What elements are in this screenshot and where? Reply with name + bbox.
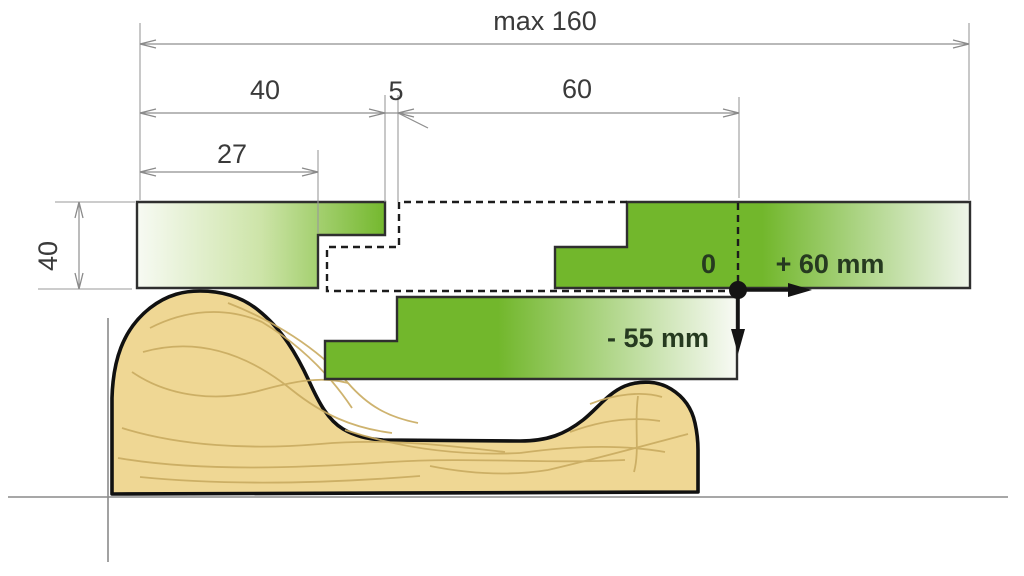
dimension-height-40: 40 (33, 202, 135, 289)
dimension-label-27: 27 (217, 139, 247, 169)
dimension-diagram: max 160 40 5 60 27 40 (0, 0, 1024, 576)
dimension-label-5: 5 (388, 76, 403, 106)
cutter-block-right (555, 202, 970, 288)
diagram-canvas: max 160 40 5 60 27 40 (0, 0, 1024, 576)
dimension-label-height-40: 40 (33, 241, 63, 271)
dimension-label-40: 40 (250, 75, 280, 105)
origin-dot (729, 281, 747, 299)
dimension-label-60: 60 (562, 74, 592, 104)
cutter-block-left (137, 202, 385, 288)
origin-zero-label: 0 (701, 249, 716, 279)
travel-right-label: + 60 mm (776, 249, 885, 279)
arrow-tail (398, 113, 428, 128)
dimension-label-max-160: max 160 (493, 6, 597, 36)
dimension-row-40-5-60: 40 5 60 (140, 74, 739, 202)
travel-down-label: - 55 mm (607, 323, 709, 353)
